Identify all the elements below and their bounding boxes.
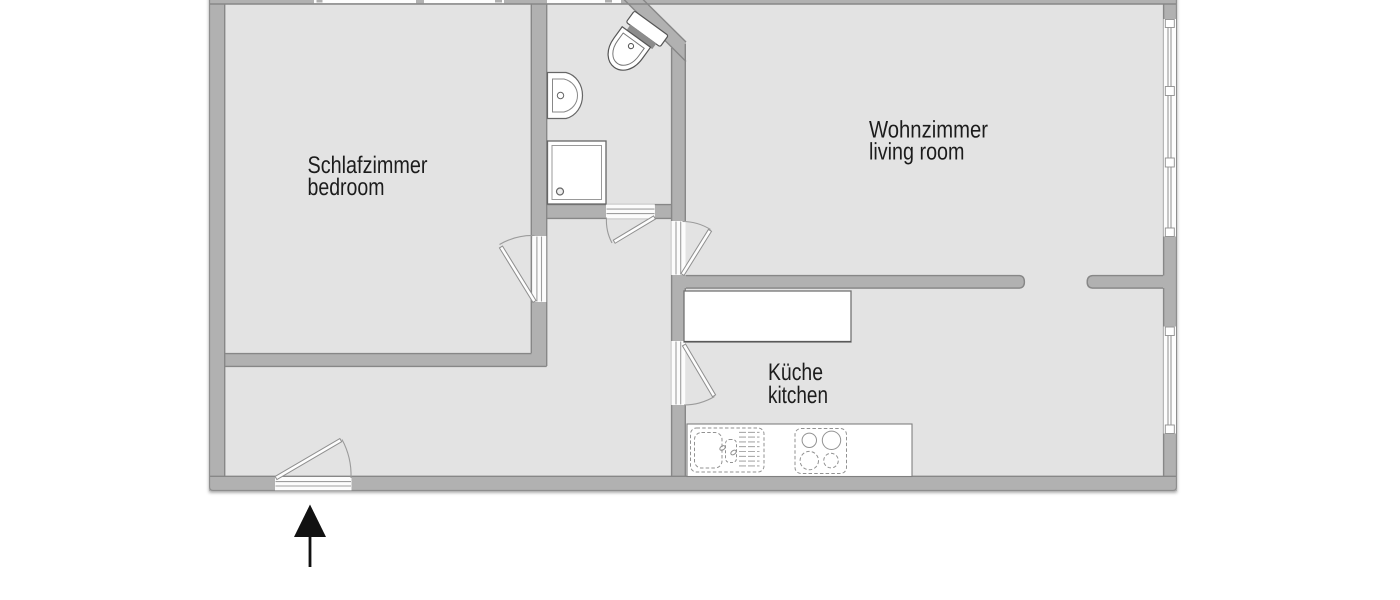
svg-text:bedroom: bedroom <box>308 174 385 201</box>
svg-text:kitchen: kitchen <box>768 382 828 409</box>
svg-text:living room: living room <box>869 139 965 166</box>
